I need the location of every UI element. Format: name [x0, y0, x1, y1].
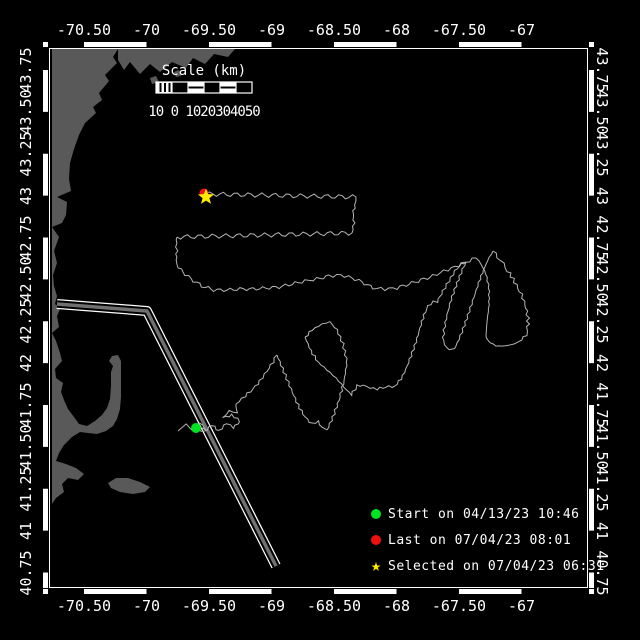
- lat-label-left: 41.25: [17, 466, 35, 511]
- lat-label-right: 42.25: [593, 299, 611, 344]
- lat-label-right: 41.75: [593, 382, 611, 427]
- lon-label-top: -69.50: [182, 21, 236, 39]
- glider-map-window: Scale (km) 10 0 1020304050 Start on 04/1…: [0, 0, 640, 640]
- lon-label-top: -70.50: [57, 21, 111, 39]
- legend-star: ★: [371, 561, 381, 571]
- lat-label-right: 43.25: [593, 131, 611, 176]
- circle-icon: [364, 509, 388, 519]
- shipping-lane: [57, 304, 276, 566]
- legend: Start on 04/13/23 10:46Last on 07/04/23 …: [364, 501, 605, 579]
- lon-label-top: -69: [258, 21, 285, 39]
- lon-label-bottom: -67: [508, 597, 535, 615]
- legend-label: Last on 07/04/23 08:01: [388, 533, 571, 548]
- lon-label-bottom: -70: [133, 597, 160, 615]
- lon-label-bottom: -68.50: [307, 597, 361, 615]
- lat-label-right: 43: [593, 187, 611, 205]
- legend-row: Start on 04/13/23 10:46: [364, 501, 605, 527]
- map-layers: [52, 49, 530, 566]
- survey-track[interactable]: [176, 192, 530, 431]
- lat-label-right: 43.75: [593, 47, 611, 92]
- legend-dot: [371, 509, 381, 519]
- lat-label-right: 41: [593, 522, 611, 540]
- legend-dot: [371, 535, 381, 545]
- lon-label-bottom: -69: [258, 597, 285, 615]
- lat-label-right: 41.50: [593, 424, 611, 469]
- lat-label-right: 43.50: [593, 89, 611, 134]
- lat-label-right: 42: [593, 354, 611, 372]
- lat-label-left: 43.75: [17, 47, 35, 92]
- lon-label-bottom: -67.50: [432, 597, 486, 615]
- lat-label-left: 41: [17, 522, 35, 540]
- scalebar-tick-labels: 10 0 1020304050: [148, 104, 259, 120]
- lon-label-top: -70: [133, 21, 160, 39]
- lat-label-left: 43: [17, 187, 35, 205]
- lat-label-left: 42: [17, 354, 35, 372]
- lon-label-top: -68.50: [307, 21, 361, 39]
- lat-label-right: 42.75: [593, 215, 611, 260]
- legend-label: Selected on 07/04/23 06:31: [388, 559, 605, 574]
- lat-label-right: 40.75: [593, 550, 611, 595]
- lon-label-bottom: -69.50: [182, 597, 236, 615]
- star-icon: ★: [364, 561, 388, 571]
- scalebar-title: Scale (km): [162, 63, 246, 79]
- legend-label: Start on 04/13/23 10:46: [388, 507, 580, 522]
- legend-row: ★Selected on 07/04/23 06:31: [364, 553, 605, 579]
- circle-icon: [364, 535, 388, 545]
- lat-label-left: 42.50: [17, 257, 35, 302]
- lon-label-top: -68: [383, 21, 410, 39]
- lat-label-left: 43.50: [17, 89, 35, 134]
- lon-label-bottom: -70.50: [57, 597, 111, 615]
- lon-label-top: -67.50: [432, 21, 486, 39]
- lat-label-right: 41.25: [593, 466, 611, 511]
- lat-label-right: 42.50: [593, 257, 611, 302]
- lat-label-left: 42.75: [17, 215, 35, 260]
- lon-label-bottom: -68: [383, 597, 410, 615]
- start-marker[interactable]: [191, 423, 201, 433]
- lat-label-left: 43.25: [17, 131, 35, 176]
- lat-label-left: 41.50: [17, 424, 35, 469]
- lat-label-left: 40.75: [17, 550, 35, 595]
- scalebar: [156, 82, 252, 93]
- legend-row: Last on 07/04/23 08:01: [364, 527, 605, 553]
- lat-label-left: 41.75: [17, 382, 35, 427]
- lat-label-left: 42.25: [17, 299, 35, 344]
- lon-label-top: -67: [508, 21, 535, 39]
